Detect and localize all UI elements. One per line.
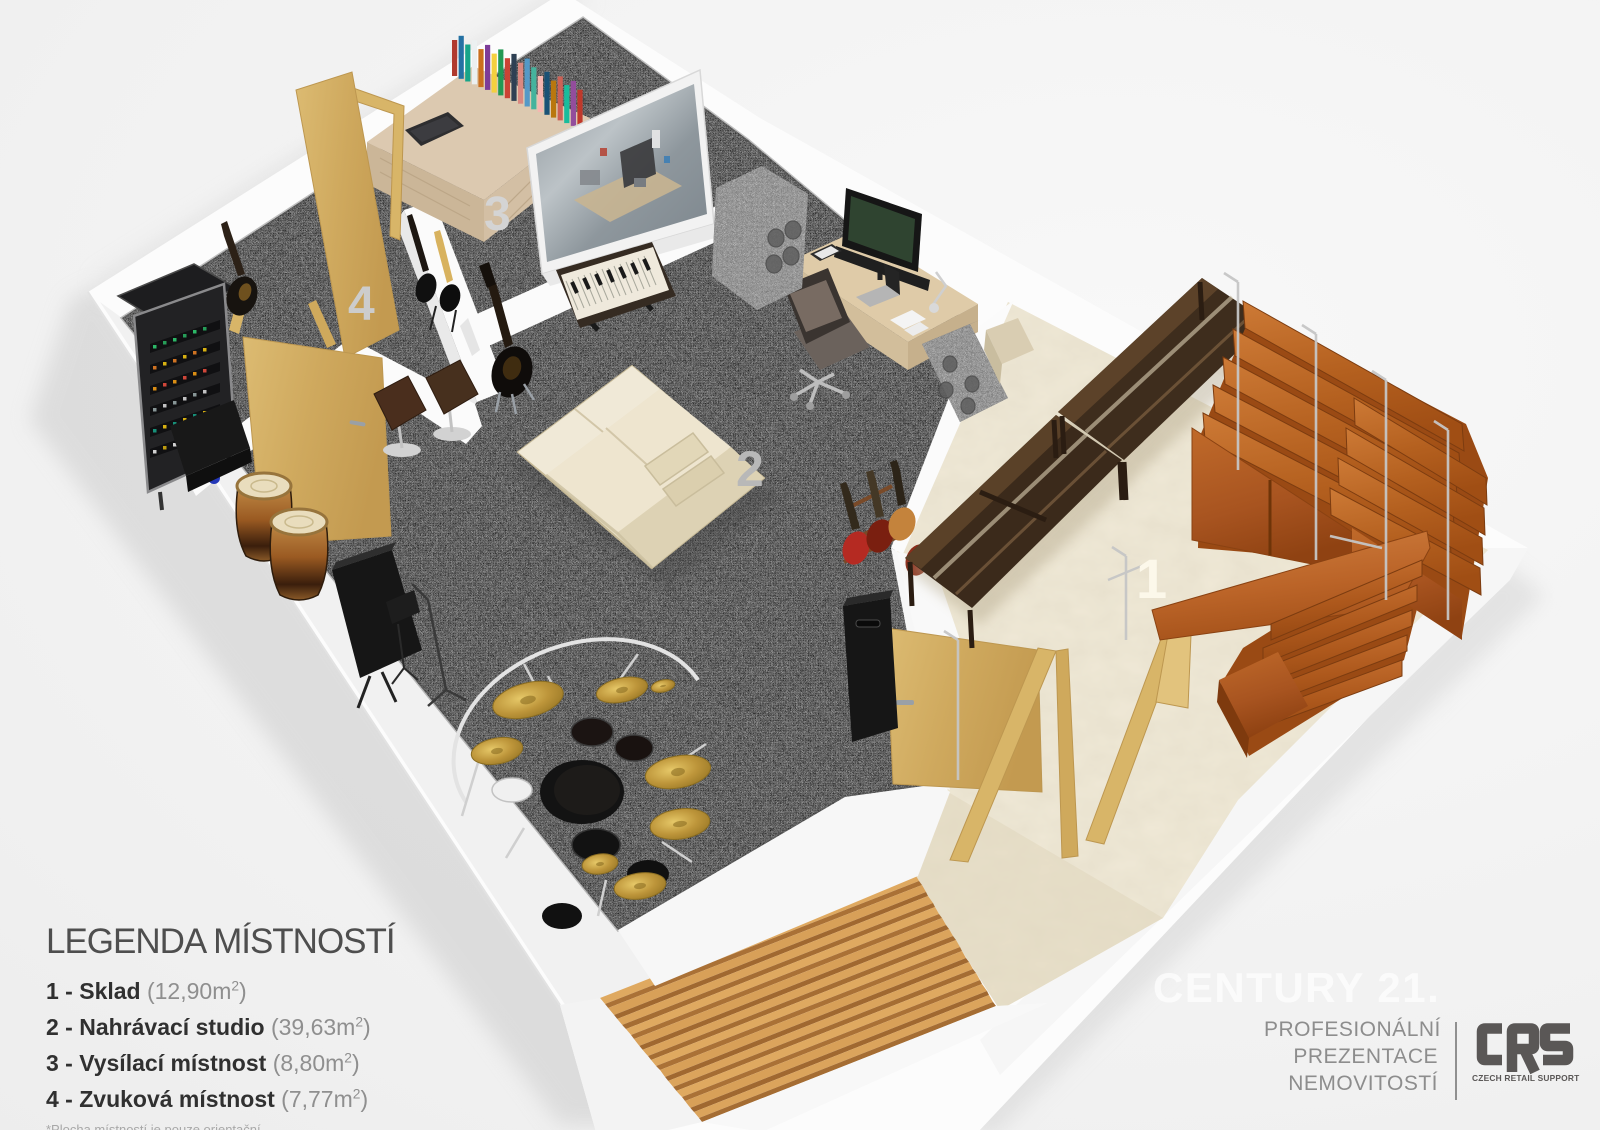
svg-text:CZECH RETAIL SUPPORT: CZECH RETAIL SUPPORT [1472, 1073, 1580, 1083]
svg-text:1: 1 [1136, 547, 1167, 610]
svg-text:3: 3 [484, 188, 511, 241]
svg-text:2: 2 [736, 441, 764, 497]
svg-text:4: 4 [348, 278, 375, 331]
